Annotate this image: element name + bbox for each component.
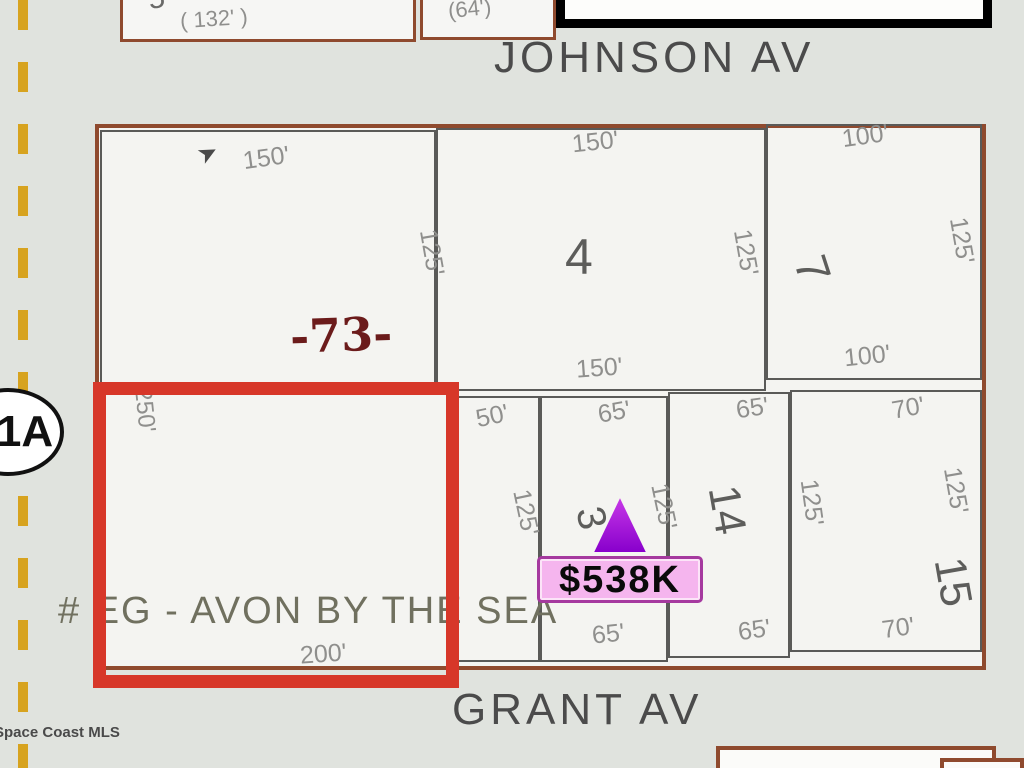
dim-64-top-mid: (64'): [447, 0, 492, 22]
selected-parcel-outline[interactable]: [93, 382, 459, 688]
dim-lot15-right: 125': [939, 465, 972, 515]
lot-number-15: 15: [927, 554, 979, 610]
dim-block73-top: 150': [241, 143, 291, 174]
price-label: $538K: [559, 561, 681, 599]
route-oval: 1A: [0, 388, 64, 476]
adjacent-parcel-bottom-right-step: [940, 758, 1024, 768]
dim-lot7-right: 125': [945, 215, 978, 265]
dim-lot15-bottom: 70': [880, 614, 916, 643]
dim-block73-right: 125': [415, 227, 448, 277]
dim-132-top-left: ( 132' ): [179, 6, 248, 33]
block-number-73: -73-: [289, 310, 393, 360]
street-label-johnson-av: JOHNSON AV: [494, 36, 814, 80]
dim-lot14-right: 125': [796, 478, 827, 528]
dim-lot7-bottom: 100': [843, 342, 892, 372]
dim-lot14-bottom: 65': [736, 616, 772, 645]
dim-lot7-top: 100': [840, 121, 890, 152]
adjacent-parcel-black-outline: [556, 0, 992, 28]
price-bubble[interactable]: $538K: [537, 556, 703, 603]
dashed-centerline: [18, 0, 28, 768]
dim-lot3-top: 65': [596, 397, 632, 427]
dim-lot4-top: 150': [571, 128, 620, 158]
mls-watermark: Space Coast MLS: [0, 724, 120, 741]
dim-lot3-bottom: 65': [591, 620, 626, 648]
lot-number-14: 14: [701, 482, 753, 538]
parcel-map[interactable]: 5 ( 132' ) (64') JOHNSON AV GRANT AV ➤ 1…: [0, 0, 1024, 768]
dim-lot4-right: 125': [729, 227, 762, 277]
dim-strip-top: 50': [474, 401, 511, 432]
lot-number-4: 4: [565, 232, 593, 282]
street-label-grant-av: GRANT AV: [452, 688, 702, 732]
dim-lot4-bottom: 150': [575, 354, 623, 382]
dim-lot14-top: 65': [734, 394, 770, 423]
route-oval-label: 1A: [0, 410, 53, 454]
lot-4: [436, 128, 766, 391]
dim-lot15-top: 70': [890, 393, 926, 423]
